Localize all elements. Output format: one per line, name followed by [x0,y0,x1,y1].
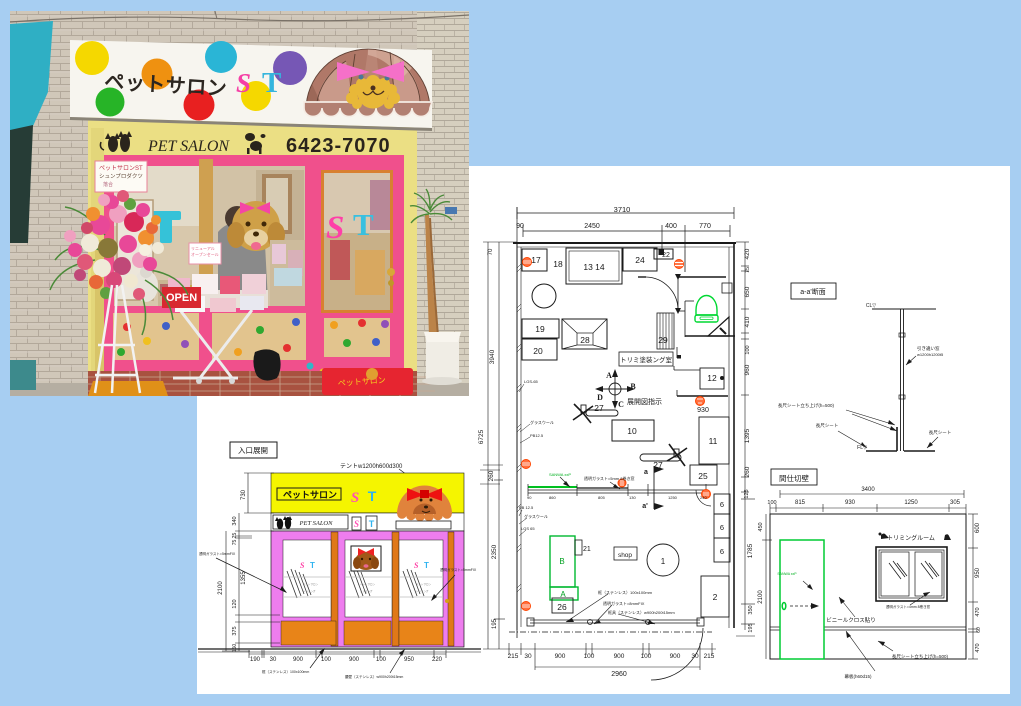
svg-text:透明ガラスト=5mmFIX: 透明ガラスト=5mmFIX [440,567,477,572]
svg-text:長尺シート: 長尺シート [929,430,952,436]
svg-text:トリミ塗装ング室: トリミ塗装ング室 [620,355,673,364]
svg-text:T: T [310,561,315,570]
svg-text:75 25: 75 25 [232,533,238,546]
svg-text:930: 930 [697,407,709,414]
svg-text:28: 28 [580,335,590,345]
svg-text:70: 70 [488,248,494,255]
svg-text:13 14: 13 14 [583,262,605,272]
svg-text:17: 17 [531,255,541,265]
svg-text:24: 24 [635,255,645,265]
svg-text:860: 860 [549,495,556,500]
svg-text:75: 75 [745,267,751,273]
svg-text:S: S [236,68,251,98]
svg-text:3710: 3710 [614,205,631,214]
svg-text:C: C [618,400,624,409]
svg-text:長尺シート立ち上げ(h=500): 長尺シート立ち上げ(h=500) [892,653,949,660]
svg-text:T: T [368,488,377,504]
svg-text:6: 6 [720,547,724,556]
svg-text:幕板(h60d15): 幕板(h60d15) [844,673,872,680]
svg-text:3940: 3940 [489,349,496,364]
svg-text:オープンセール: オープンセール [191,251,219,257]
svg-text:450: 450 [758,522,764,531]
svg-text:T: T [353,207,374,242]
svg-text:FL▽: FL▽ [857,445,867,451]
svg-text:框（ステンレス）100x100mm: 框（ステンレス）100x100mm [598,589,653,595]
svg-text:6: 6 [720,523,724,532]
svg-text:S: S [300,561,305,570]
svg-text:120: 120 [232,599,238,608]
svg-text:900: 900 [614,653,625,660]
svg-text:OPEN: OPEN [166,292,197,304]
svg-text:305: 305 [950,500,961,506]
svg-text:215: 215 [508,653,519,660]
svg-text:入口展開: 入口展開 [238,446,268,455]
svg-text:PET SALON: PET SALON [299,520,334,527]
svg-text:T: T [262,67,281,99]
svg-text:22: 22 [662,252,670,259]
svg-text:透明ガラスト=5mmFIX: 透明ガラスト=5mmFIX [199,551,236,556]
svg-text:6: 6 [720,500,724,509]
svg-text:ペットサロン: ペットサロン [283,490,337,500]
svg-text:195: 195 [492,618,498,629]
svg-text:2450: 2450 [584,223,600,230]
svg-text:960: 960 [744,364,751,375]
svg-text:18: 18 [553,259,563,269]
svg-text:30: 30 [524,653,532,660]
svg-text:A: A [560,590,566,599]
svg-text:LGS 65: LGS 65 [521,526,535,531]
svg-text:間仕切壁: 間仕切壁 [779,473,809,483]
svg-text:ペットサロン: ペットサロン [416,582,432,586]
svg-text:260: 260 [488,470,495,481]
svg-text:トリミング: トリミング [303,589,316,593]
svg-text:トリミングルーム: トリミングルーム [887,534,935,542]
svg-text:6423-7070: 6423-7070 [286,135,391,157]
svg-text:テントw1200h600d300: テントw1200h600d300 [340,463,403,470]
svg-text:グラスウール: グラスウール [524,513,548,519]
svg-text:S: S [351,490,359,506]
svg-text:トリミング: トリミング [360,589,373,593]
svg-text:T: T [369,519,375,529]
svg-text:透明ガラスト=8mmFIX: 透明ガラスト=8mmFIX [603,600,645,606]
svg-text:框（ステンレス）100x100mm: 框（ステンレス）100x100mm [262,669,309,674]
svg-text:shop: shop [618,552,632,559]
svg-text:ペットサロン: ペットサロン [303,582,319,586]
svg-text:腰壁（ステンレス）w900h200t15mm: 腰壁（ステンレス）w900h200t15mm [345,674,403,679]
svg-text:B: B [559,557,564,566]
svg-text:落合: 落合 [103,181,113,188]
svg-text:470: 470 [975,607,981,616]
svg-text:900: 900 [555,653,566,660]
svg-text:長尺シート: 長尺シート [816,423,839,429]
svg-text:框具（ステンレス）w900h200t15mm: 框具（ステンレス）w900h200t15mm [608,609,675,615]
svg-text:27: 27 [594,403,604,413]
svg-text:260: 260 [744,466,751,477]
svg-text:90: 90 [527,495,532,500]
svg-text:650: 650 [744,286,751,297]
svg-text:125: 125 [744,489,750,498]
svg-text:950: 950 [975,567,981,578]
svg-text:1250: 1250 [668,495,678,500]
svg-text:29: 29 [658,335,668,345]
svg-text:25: 25 [698,471,708,481]
svg-text:30: 30 [691,653,699,660]
svg-text:3400: 3400 [861,487,875,493]
svg-text:2350: 2350 [491,544,498,559]
svg-text:グラスウール: グラスウール [530,419,554,425]
svg-text:805: 805 [598,495,605,500]
svg-text:ペットサロン: ペットサロン [360,582,376,586]
svg-text:ペットサロンST: ペットサロンST [99,165,143,172]
svg-text:B: B [630,382,636,391]
svg-text:900: 900 [349,657,360,663]
svg-text:420: 420 [744,248,751,259]
svg-text:シュンプロダクツ: シュンプロダクツ [99,172,143,180]
svg-text:27: 27 [653,460,663,470]
svg-text:a: a [644,469,648,476]
svg-text:トリミング: トリミング [416,589,429,593]
svg-text:SANWA xxP: SANWA xxP [777,572,797,576]
svg-text:10: 10 [627,426,637,436]
svg-text:730: 730 [241,489,247,500]
svg-text:100: 100 [767,500,776,506]
svg-text:透明ガラスト=4mm 8巻き窓: 透明ガラスト=4mm 8巻き窓 [886,604,931,609]
svg-text:SANWA xxP: SANWA xxP [549,472,571,477]
svg-text:PB 12.5: PB 12.5 [519,505,534,510]
svg-text:a-a'断面: a-a'断面 [800,287,825,296]
svg-text:2960: 2960 [611,671,627,678]
svg-text:195: 195 [748,623,754,632]
svg-text:190: 190 [250,657,261,663]
svg-text:100: 100 [376,657,387,663]
svg-text:リニューアル: リニューアル [191,246,215,251]
svg-text:1785: 1785 [747,543,754,558]
svg-text:透明ガラスト=5mm 8巻き窓: 透明ガラスト=5mm 8巻き窓 [584,475,634,481]
svg-text:w1200h1200t5: w1200h1200t5 [917,352,944,357]
svg-text:815: 815 [795,500,806,506]
svg-text:100: 100 [584,653,595,660]
svg-text:CL▽: CL▽ [866,303,876,309]
svg-text:410: 410 [744,316,751,327]
svg-text:1395: 1395 [744,428,751,443]
svg-text:D: D [597,393,603,402]
svg-text:220: 220 [432,657,443,663]
svg-text:長尺シート立ち上げ(h=500): 長尺シート立ち上げ(h=500) [778,402,835,409]
svg-text:900: 900 [293,657,304,663]
svg-text:26: 26 [557,602,567,612]
svg-text:400: 400 [665,223,677,230]
svg-text:21: 21 [583,546,591,553]
svg-text:PB12.5: PB12.5 [530,433,544,438]
svg-text:340: 340 [232,516,238,525]
svg-text:1: 1 [661,557,666,566]
svg-text:PET SALON: PET SALON [147,138,230,155]
svg-text:12: 12 [707,373,717,383]
svg-text:展開図指示: 展開図指示 [627,397,662,406]
svg-text:11: 11 [709,436,718,446]
svg-text:100: 100 [321,657,332,663]
svg-text:LGS-65: LGS-65 [524,379,539,384]
svg-text:S: S [354,519,359,529]
svg-text:19: 19 [535,324,545,334]
svg-text:150: 150 [232,644,238,653]
svg-text:950: 950 [404,657,415,663]
svg-text:130: 130 [629,495,636,500]
svg-text:2100: 2100 [218,581,224,595]
svg-text:6725: 6725 [478,429,485,444]
svg-text:90: 90 [516,223,524,230]
svg-text:2100: 2100 [758,590,764,604]
svg-text:240: 240 [700,495,707,500]
svg-text:a': a' [642,503,648,510]
svg-text:S: S [326,210,344,246]
svg-text:20: 20 [533,346,543,356]
svg-text:215: 215 [704,653,715,660]
svg-text:T: T [424,561,429,570]
svg-text:100: 100 [641,653,652,660]
svg-text:770: 770 [699,223,711,230]
svg-text:ビニールクロス貼り: ビニールクロス貼り [826,616,876,624]
svg-text:930: 930 [845,500,856,506]
svg-text:30: 30 [270,657,277,663]
svg-text:100: 100 [745,345,751,354]
svg-text:1250: 1250 [904,500,918,506]
svg-text:600: 600 [975,522,981,533]
svg-text:2: 2 [713,592,718,602]
svg-text:375: 375 [232,626,238,635]
svg-text:900: 900 [670,653,681,660]
svg-text:350: 350 [748,605,754,614]
svg-text:60: 60 [976,627,982,633]
svg-text:引き違い窓: 引き違い窓 [917,345,940,352]
svg-text:A: A [606,371,612,380]
svg-text:470: 470 [975,643,981,652]
svg-text:S: S [414,561,419,570]
